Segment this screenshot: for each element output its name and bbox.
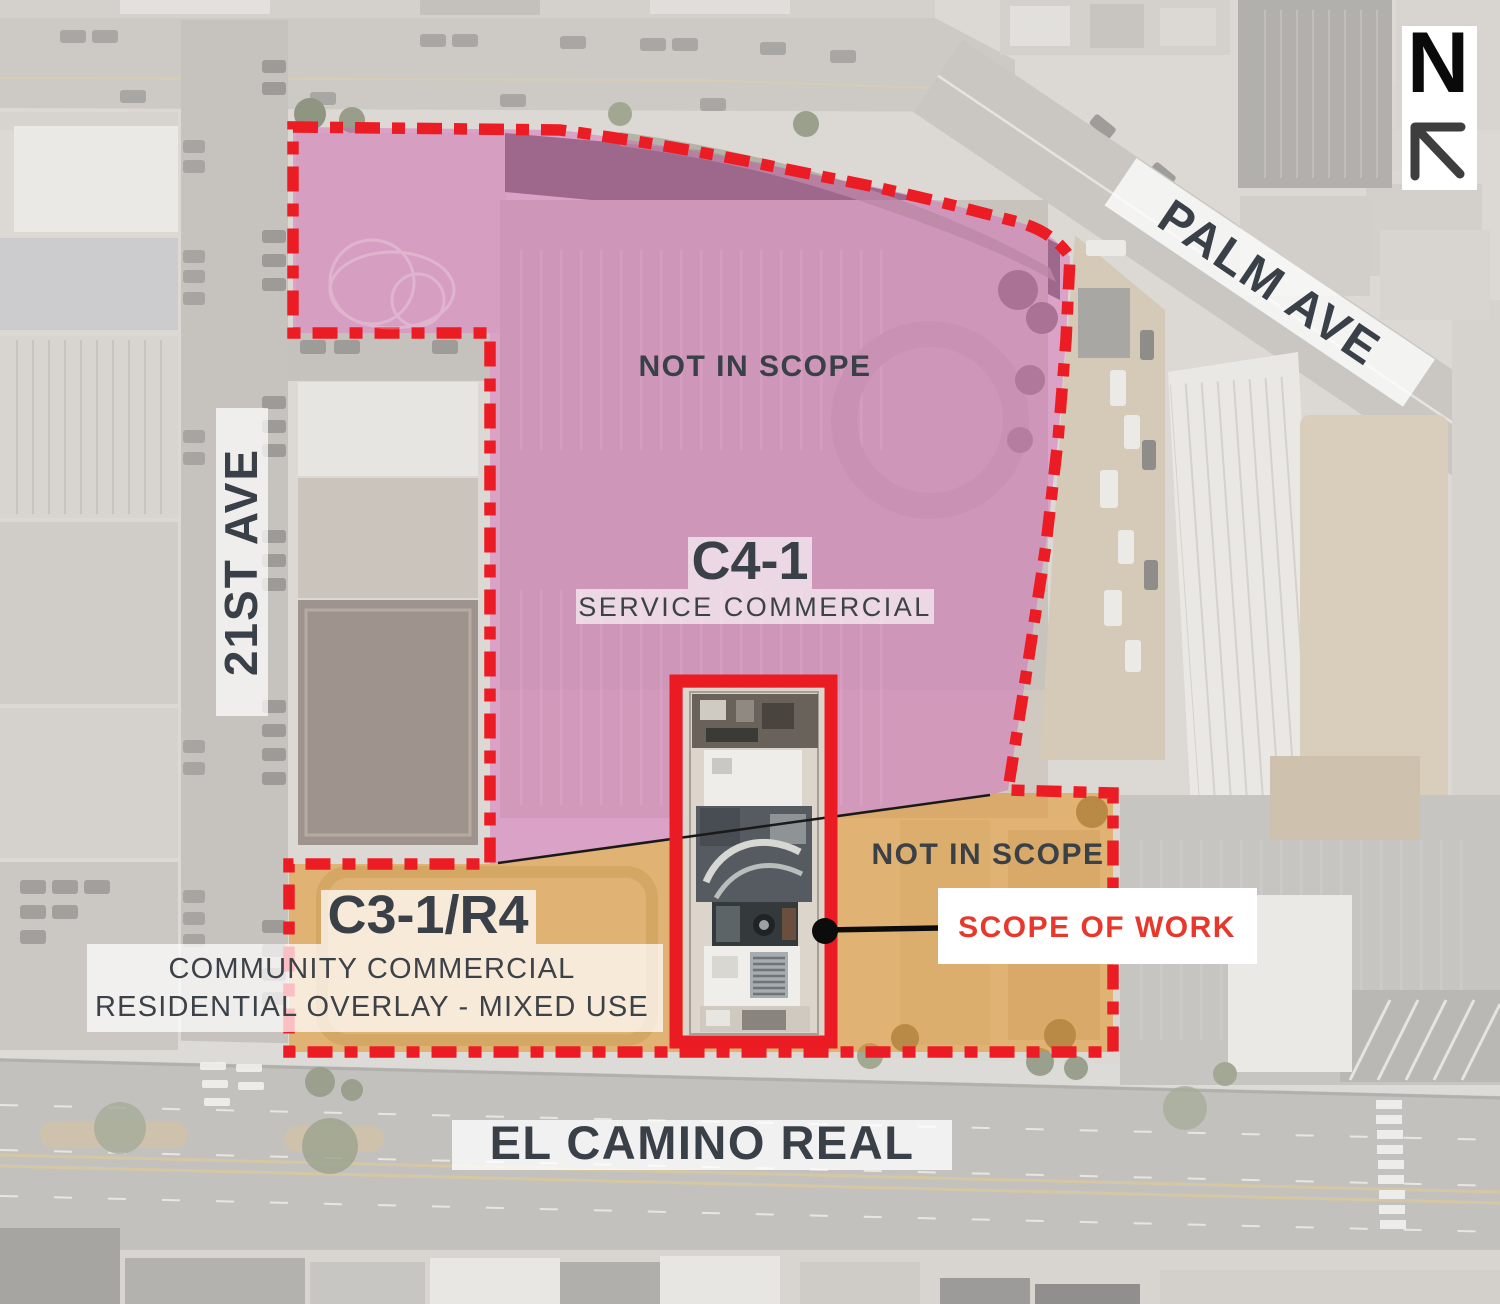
svg-text:C4-1: C4-1 bbox=[691, 531, 808, 591]
svg-text:NOT IN SCOPE: NOT IN SCOPE bbox=[638, 350, 871, 383]
svg-text:RESIDENTIAL OVERLAY - MIXED US: RESIDENTIAL OVERLAY - MIXED USE bbox=[95, 991, 649, 1023]
svg-text:21ST AVE: 21ST AVE bbox=[215, 448, 267, 676]
svg-text:C3-1/R4: C3-1/R4 bbox=[327, 885, 528, 945]
svg-text:COMMUNITY COMMERCIAL: COMMUNITY COMMERCIAL bbox=[169, 953, 576, 985]
svg-text:SCOPE OF WORK: SCOPE OF WORK bbox=[958, 911, 1236, 944]
svg-text:EL CAMINO REAL: EL CAMINO REAL bbox=[490, 1116, 915, 1169]
svg-text:N: N bbox=[1407, 15, 1469, 111]
svg-text:SERVICE COMMERCIAL: SERVICE COMMERCIAL bbox=[578, 592, 932, 622]
svg-text:NOT IN SCOPE: NOT IN SCOPE bbox=[871, 838, 1104, 871]
